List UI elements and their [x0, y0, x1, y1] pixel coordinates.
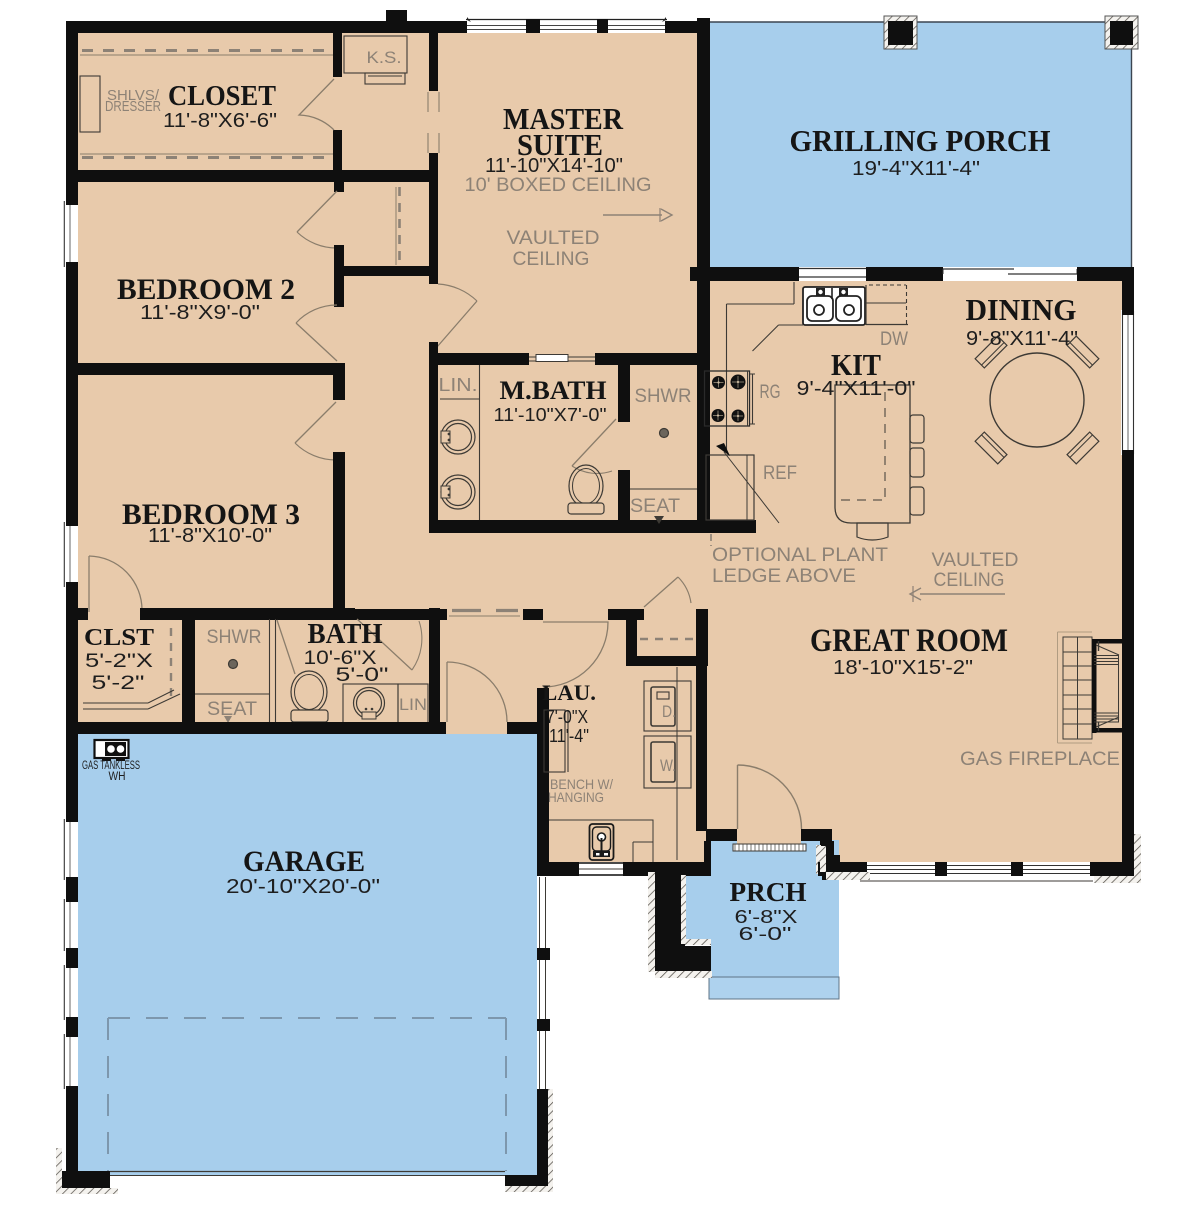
svg-text:SEAT: SEAT — [207, 699, 257, 720]
svg-text:LAU.: LAU. — [542, 680, 596, 705]
svg-text:LIN.: LIN. — [439, 375, 478, 395]
svg-text:CLOSET: CLOSET — [168, 81, 276, 112]
svg-text:11'-8"X6'-6": 11'-8"X6'-6" — [163, 110, 277, 132]
svg-text:20'-10"X20'-0": 20'-10"X20'-0" — [226, 876, 380, 898]
svg-text:6'-0": 6'-0" — [739, 924, 792, 944]
svg-text:SEAT: SEAT — [630, 496, 680, 517]
svg-text:9'-8"X11'-4": 9'-8"X11'-4" — [966, 328, 1078, 350]
svg-text:GAS FIREPLACE: GAS FIREPLACE — [960, 749, 1120, 770]
svg-text:9'-4"X11'-0": 9'-4"X11'-0" — [797, 378, 916, 400]
svg-text:M.BATH: M.BATH — [500, 376, 607, 405]
svg-text:10' BOXED CEILING: 10' BOXED CEILING — [465, 175, 652, 196]
svg-text:RG: RG — [760, 382, 781, 403]
svg-text:11'-10"X7'-0": 11'-10"X7'-0" — [494, 405, 607, 425]
svg-text:11'-4": 11'-4" — [549, 726, 589, 746]
svg-text:18'-10"X15'-2": 18'-10"X15'-2" — [833, 657, 973, 679]
svg-text:OPTIONAL PLANT: OPTIONAL PLANT — [712, 545, 888, 566]
svg-text:LEDGE ABOVE: LEDGE ABOVE — [712, 566, 856, 587]
svg-text:11'-10"X14'-10": 11'-10"X14'-10" — [485, 155, 623, 177]
svg-text:GARAGE: GARAGE — [243, 845, 365, 878]
svg-text:19'-4"X11'-4": 19'-4"X11'-4" — [852, 158, 980, 180]
svg-text:SHWR: SHWR — [207, 627, 262, 648]
svg-text:GRILLING PORCH: GRILLING PORCH — [790, 123, 1051, 158]
svg-text:BATH: BATH — [308, 619, 383, 650]
svg-text:VAULTED: VAULTED — [507, 228, 600, 249]
svg-text:W.: W. — [660, 756, 676, 775]
svg-text:D.: D. — [662, 702, 676, 721]
svg-text:K.S.: K.S. — [367, 48, 402, 67]
svg-text:5'-2": 5'-2" — [92, 673, 145, 694]
svg-text:GREAT ROOM: GREAT ROOM — [810, 623, 1008, 659]
svg-text:VAULTED: VAULTED — [932, 550, 1019, 571]
svg-text:7'-0"X: 7'-0"X — [546, 707, 588, 727]
svg-text:5'-2"X: 5'-2"X — [85, 651, 153, 672]
svg-text:11'-8"X10'-0": 11'-8"X10'-0" — [148, 525, 272, 547]
svg-text:CEILING: CEILING — [934, 570, 1005, 591]
svg-text:5'-0": 5'-0" — [336, 665, 389, 686]
svg-text:CLST: CLST — [84, 625, 154, 651]
svg-text:SHWR: SHWR — [635, 386, 692, 407]
svg-text:LIN: LIN — [399, 695, 427, 714]
svg-text:11'-8"X9'-0": 11'-8"X9'-0" — [140, 302, 260, 324]
svg-text:CEILING: CEILING — [513, 249, 590, 270]
svg-text:WH: WH — [109, 771, 126, 783]
svg-text:REF: REF — [763, 463, 797, 484]
svg-text:DRESSER: DRESSER — [105, 98, 161, 115]
svg-text:DW: DW — [880, 329, 908, 350]
svg-text:KIT: KIT — [831, 347, 881, 382]
svg-text:HANGING: HANGING — [548, 789, 604, 805]
svg-text:PRCH: PRCH — [730, 877, 807, 907]
svg-text:DINING: DINING — [966, 292, 1077, 327]
